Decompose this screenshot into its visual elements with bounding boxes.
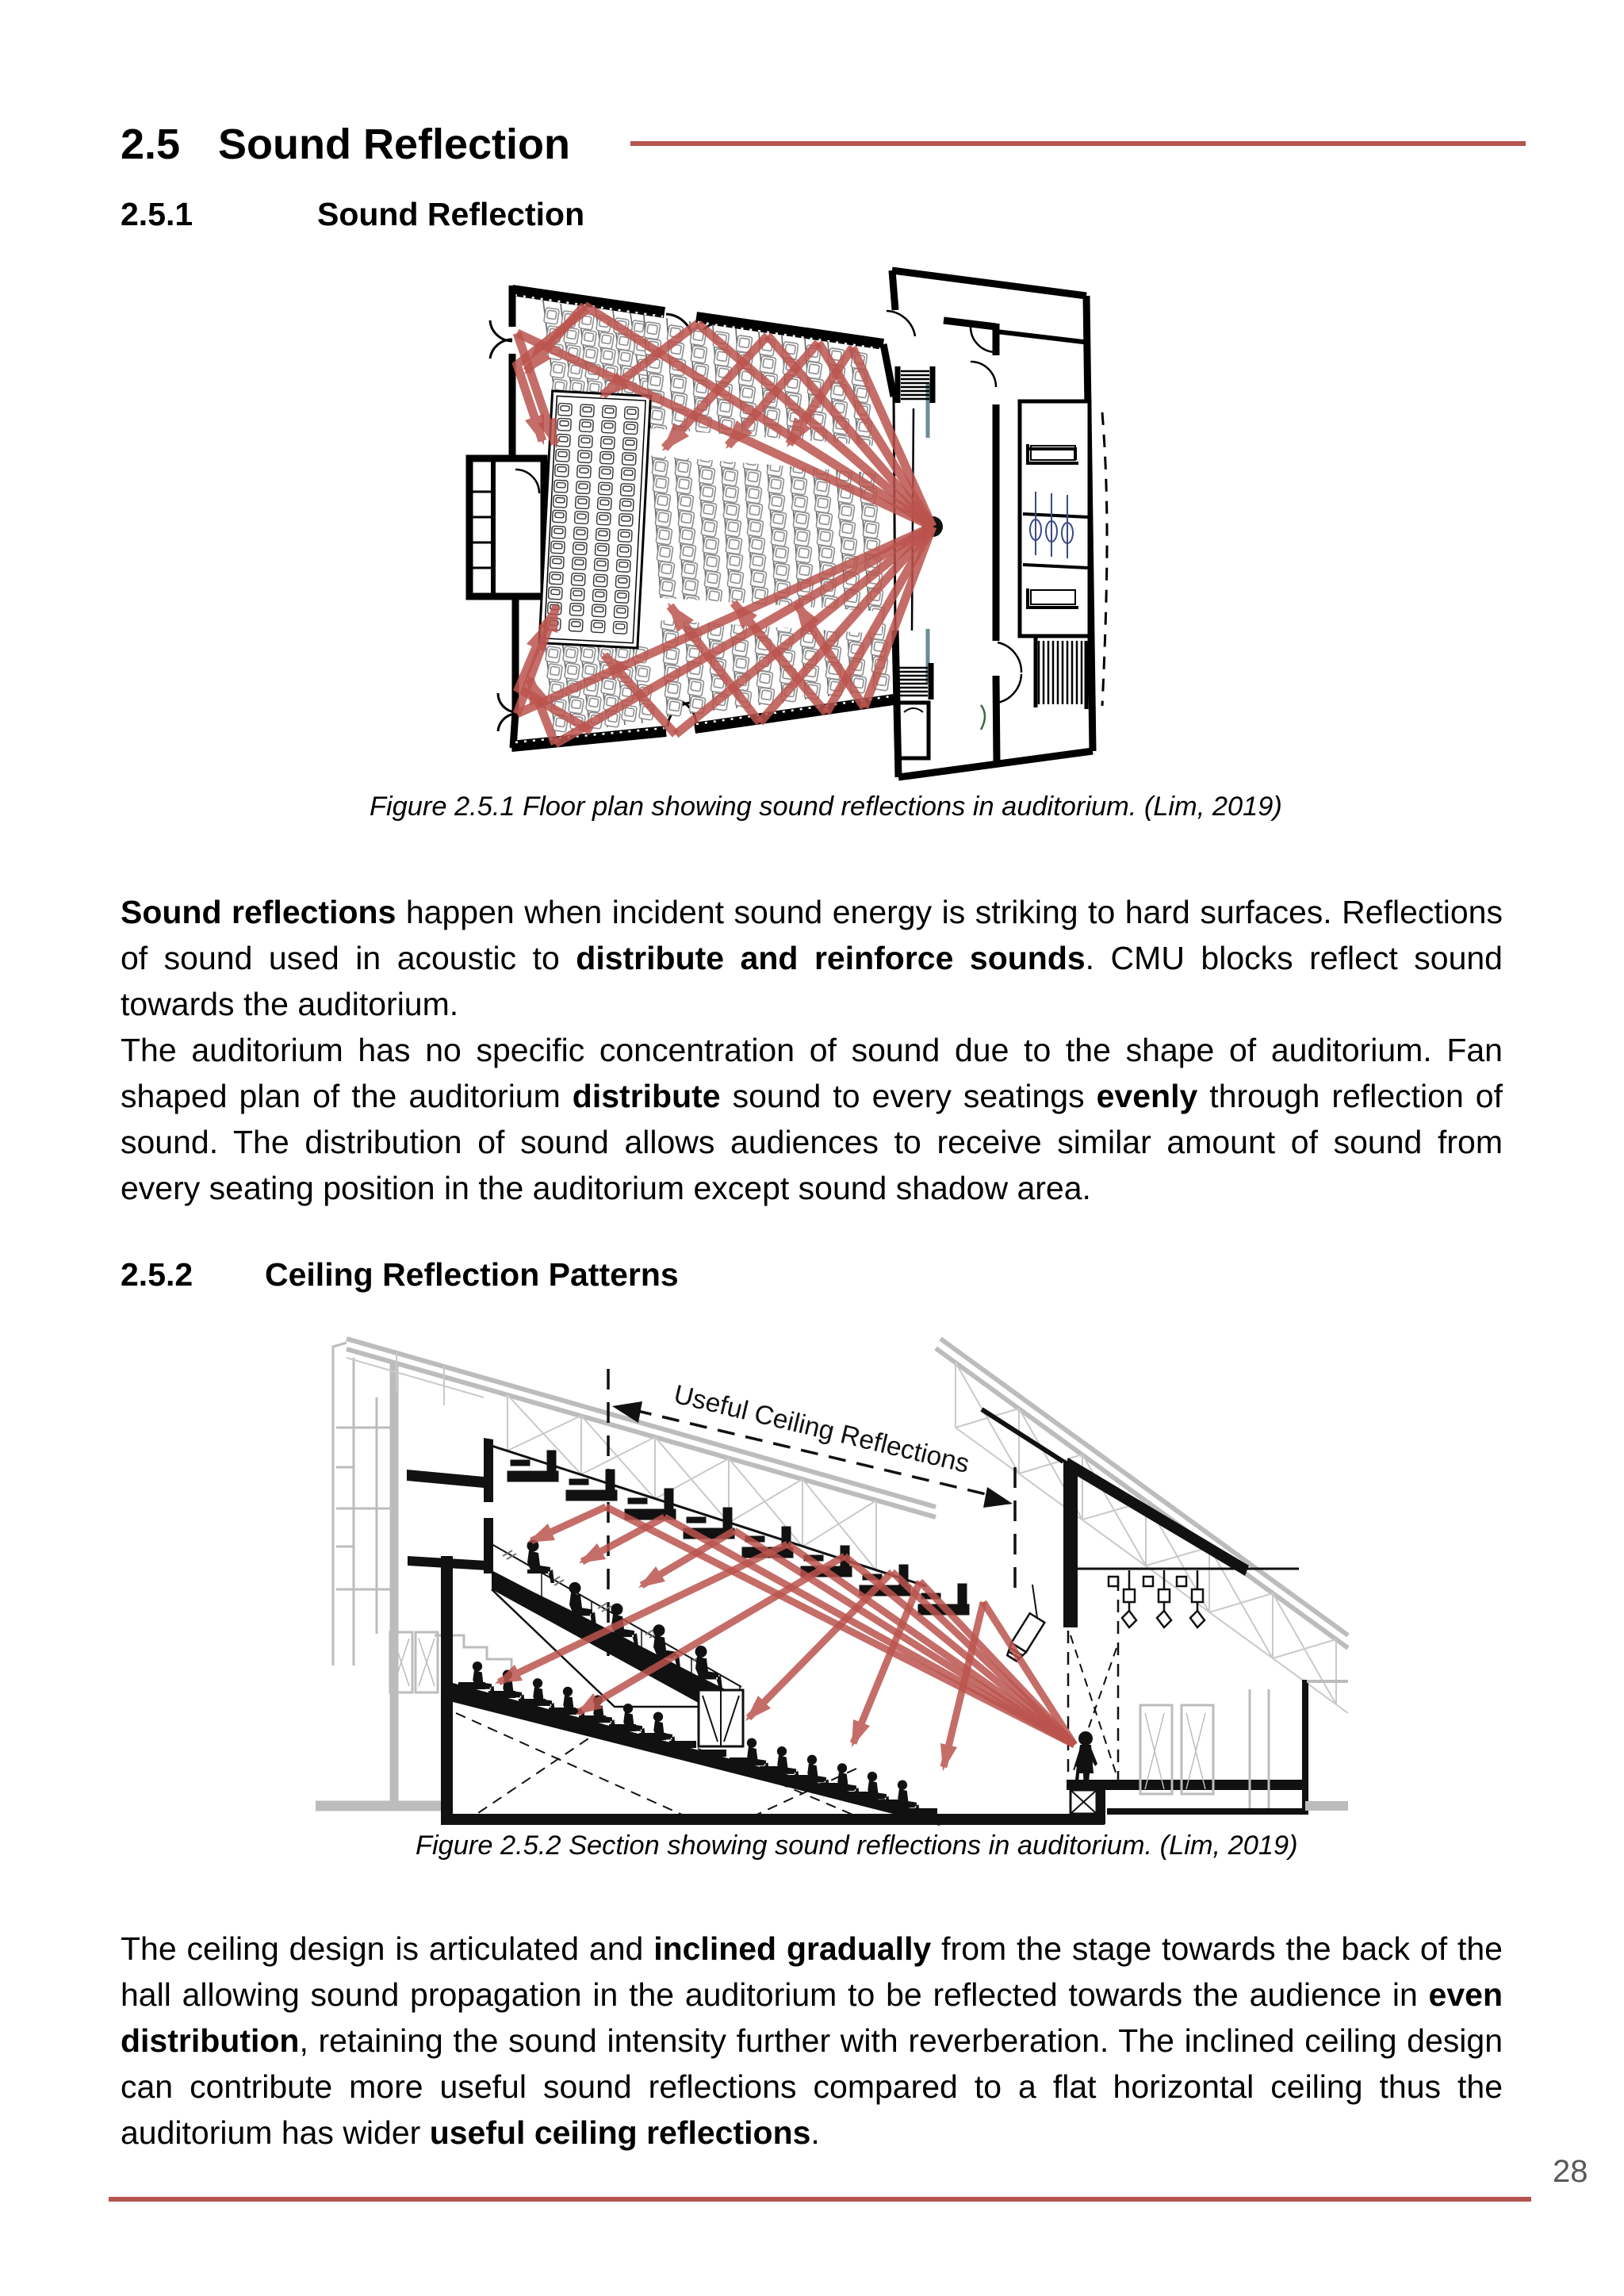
svg-text:Useful Ceiling Reflections: Useful Ceiling Reflections — [671, 1380, 972, 1479]
